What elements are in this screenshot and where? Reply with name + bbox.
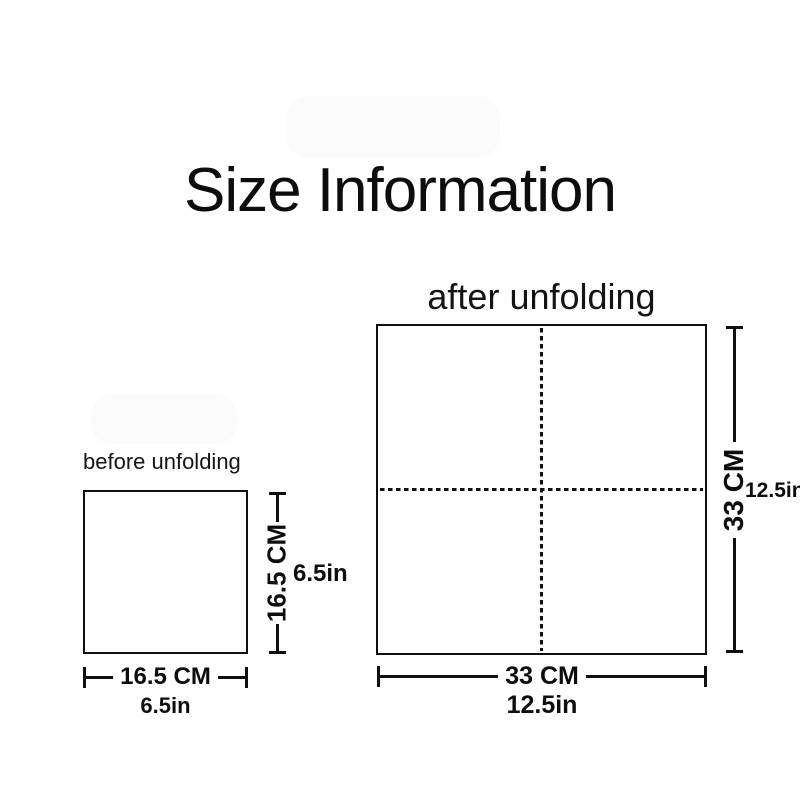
- after-unfolding-label: after unfolding: [376, 276, 707, 318]
- before-height-cm-box: 16.5 CM: [262, 522, 292, 624]
- dimension-cap-bottom: [726, 650, 743, 653]
- after-width-cm-label: 33 CM: [498, 662, 586, 691]
- dimension-line-right: [218, 676, 245, 679]
- before-unfolding-label: before unfolding: [83, 449, 248, 475]
- dimension-cap-bottom: [269, 651, 286, 654]
- dimension-line-lower: [276, 624, 279, 651]
- before-height-dimension: 16.5 CM: [262, 492, 292, 654]
- before-width-cm-label: 16.5 CM: [113, 663, 218, 691]
- before-width-dimension: 16.5 CM: [83, 662, 248, 692]
- dimension-line-right: [586, 675, 704, 678]
- before-unfolding-square: [83, 490, 248, 654]
- before-height-in-label: 6.5in: [293, 560, 348, 588]
- after-width-dimension: 33 CM: [377, 661, 707, 691]
- size-information-diagram: Size Information after unfolding 33 CM 1…: [0, 0, 800, 800]
- dimension-line-upper: [276, 495, 279, 522]
- dimension-line-left: [86, 676, 113, 679]
- before-width-in-label: 6.5in: [83, 693, 248, 719]
- dimension-line-left: [380, 675, 498, 678]
- dimension-line-lower: [733, 538, 736, 651]
- watermark-smudge-left: [90, 394, 238, 444]
- dimension-cap-right: [704, 666, 707, 687]
- after-height-in-label: 12.5in: [745, 479, 800, 503]
- after-width-in-label: 12.5in: [377, 691, 707, 720]
- before-height-cm-label: 16.5 CM: [262, 524, 293, 622]
- after-unfolding-square: [376, 324, 707, 655]
- dimension-cap-right: [245, 667, 248, 688]
- horizontal-fold-line: [380, 488, 703, 491]
- dimension-line-upper: [733, 329, 736, 442]
- watermark-smudge-top: [286, 96, 500, 158]
- page-title: Size Information: [0, 155, 800, 226]
